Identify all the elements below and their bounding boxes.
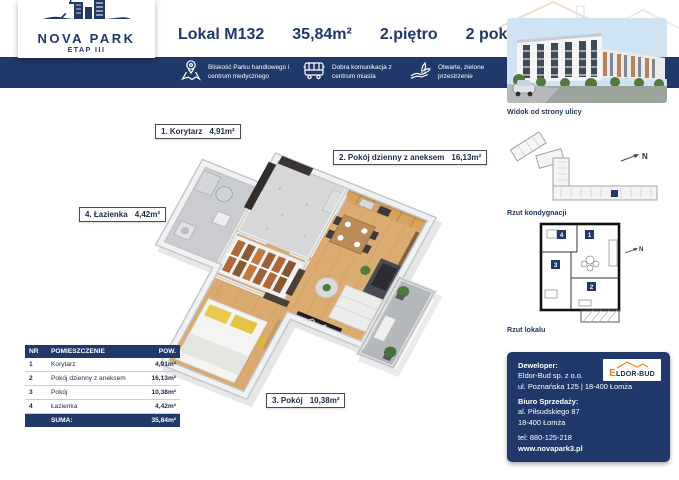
plant-hand-icon bbox=[408, 59, 432, 86]
eldor-bud-logo: ELDOR-BUD bbox=[603, 359, 661, 381]
feature-green: Otwarte, zielone przestrzenie bbox=[408, 57, 500, 88]
table-row: 1Korytarz4,91m² bbox=[25, 358, 180, 372]
rooms-table-header: NR POMIESZCZENIE POW. bbox=[25, 345, 180, 358]
rooms-table: NR POMIESZCZENIE POW. 1Korytarz4,91m² 2P… bbox=[25, 345, 180, 427]
feature-transport-text: Dobra komunikacja z centrum miasta bbox=[332, 64, 402, 81]
unit-number: Lokal M132 bbox=[178, 26, 264, 44]
photo-caption: Widok od strony ulicy bbox=[507, 107, 582, 116]
brand-name: NOVA PARK bbox=[37, 31, 135, 46]
flyer-page: Bliskość Parku handlowego i centrum medy… bbox=[0, 0, 679, 480]
eldor-bud-logo-text: ELDOR-BUD bbox=[609, 369, 655, 379]
table-sum-row: SUMA:35,84m² bbox=[25, 414, 180, 428]
phone-number: tel: 880-125-218 bbox=[518, 433, 659, 443]
north-arrow: N bbox=[621, 152, 648, 161]
svg-text:N: N bbox=[639, 247, 643, 253]
brand-etap: ETAP III bbox=[68, 47, 106, 54]
unit-location-marker bbox=[611, 190, 618, 197]
feature-green-text: Otwarte, zielone przestrzenie bbox=[438, 64, 500, 81]
sales-office-address1: al. Piłsudskiego 87 bbox=[518, 407, 659, 417]
unit-plan-diagram: 4 1 3 2 N bbox=[535, 220, 645, 324]
contact-card: ELDOR-BUD Deweloper: Eldor-Bud sp. z o.o… bbox=[507, 352, 670, 462]
feature-location-text: Bliskość Parku handlowego i centrum medy… bbox=[208, 64, 298, 81]
bus-icon bbox=[302, 59, 326, 86]
nova-park-logo: NOVA PARK ETAP III bbox=[18, 0, 155, 58]
table-row: 4Łazienka4,42m² bbox=[25, 400, 180, 414]
table-row: 2Pokój dzienny z aneksem16,13m² bbox=[25, 372, 180, 386]
svg-text:N: N bbox=[642, 152, 648, 161]
feature-location: Bliskość Parku handlowego i centrum medy… bbox=[180, 57, 298, 88]
plan-label-pokoj: 3. Pokój10,38m² bbox=[266, 393, 345, 408]
unit-plan-caption: Rzut lokalu bbox=[507, 325, 545, 334]
sales-office-address2: 18-400 Łomża bbox=[518, 418, 659, 428]
plan-label-korytarz: 1. Korytarz4,91m² bbox=[155, 124, 241, 139]
header-title-row: Lokal M132 35,84m² 2.piętro 2 pokoje bbox=[178, 26, 559, 44]
website-link[interactable]: www.novapark3.pl bbox=[518, 444, 583, 453]
developer-address: ul. Poznańska 125 | 18-400 Łomża bbox=[518, 382, 659, 392]
building-skyline-icon bbox=[41, 0, 133, 30]
sales-office-label: Biuro Sprzedaży: bbox=[518, 397, 659, 407]
north-arrow-small: N bbox=[625, 247, 643, 253]
plan-label-pokoj-dzienny: 2. Pokój dzienny z aneksem16,13m² bbox=[333, 150, 487, 165]
table-row: 3Pokój10,38m² bbox=[25, 386, 180, 400]
eldor-roof-icon bbox=[615, 360, 649, 369]
floor-layout-caption: Rzut kondygnacji bbox=[507, 208, 567, 217]
unit-floor: 2.piętro bbox=[380, 26, 438, 44]
feature-transport: Dobra komunikacja z centrum miasta bbox=[302, 57, 402, 88]
location-pin-icon bbox=[180, 58, 202, 87]
right-sidebar: Widok od strony ulicy N Rzut kondygnacji bbox=[505, 0, 679, 480]
plan-label-lazienka: 4. Łazienka4,42m² bbox=[79, 207, 166, 222]
floor-layout-diagram: N bbox=[505, 132, 670, 206]
street-view-photo bbox=[507, 18, 667, 103]
unit-area: 35,84m² bbox=[292, 26, 352, 44]
